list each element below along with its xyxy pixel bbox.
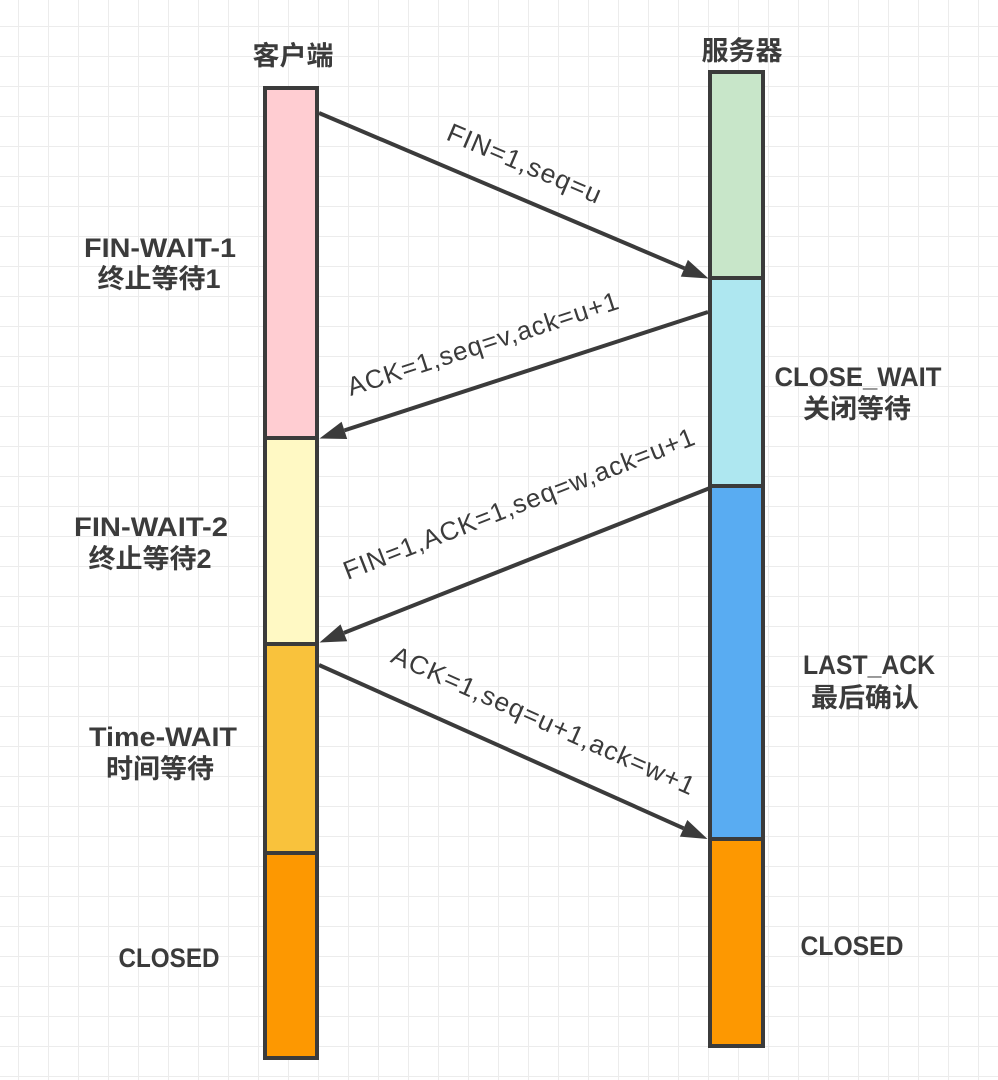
svg-text:CLOSE_WAIT: CLOSE_WAIT [775,362,942,392]
svg-text:FIN-WAIT-1: FIN-WAIT-1 [84,233,236,263]
svg-text:FIN-WAIT-2: FIN-WAIT-2 [74,512,228,542]
svg-text:LAST_ACK: LAST_ACK [803,650,935,680]
svg-text:Time-WAIT: Time-WAIT [89,722,238,752]
svg-text:1: 1 [206,264,221,294]
svg-text:2: 2 [197,544,212,574]
svg-text:CLOSED: CLOSED [801,931,904,961]
svg-text:CLOSED: CLOSED [119,943,220,973]
